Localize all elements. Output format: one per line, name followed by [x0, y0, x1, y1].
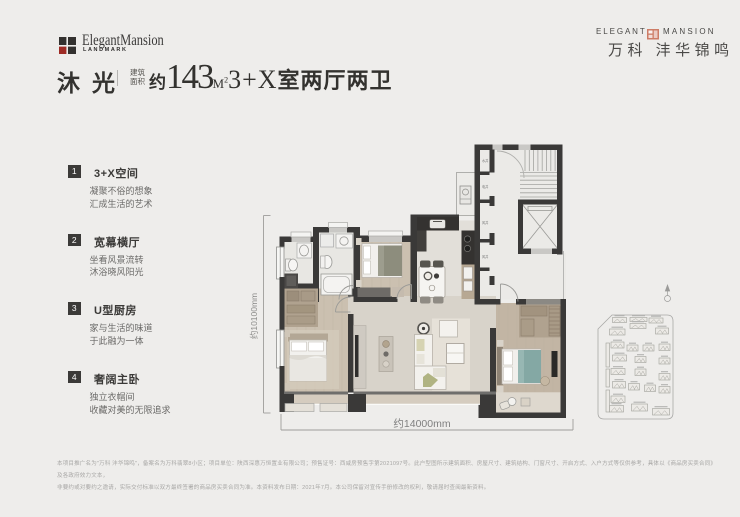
svg-text:风井: 风井	[482, 220, 488, 225]
svg-text:水井: 水井	[482, 158, 488, 163]
svg-text:约10100mm: 约10100mm	[249, 293, 259, 339]
svg-text:约14000mm: 约14000mm	[393, 417, 450, 430]
svg-text:风井: 风井	[482, 254, 488, 259]
svg-text:电井: 电井	[482, 184, 488, 189]
